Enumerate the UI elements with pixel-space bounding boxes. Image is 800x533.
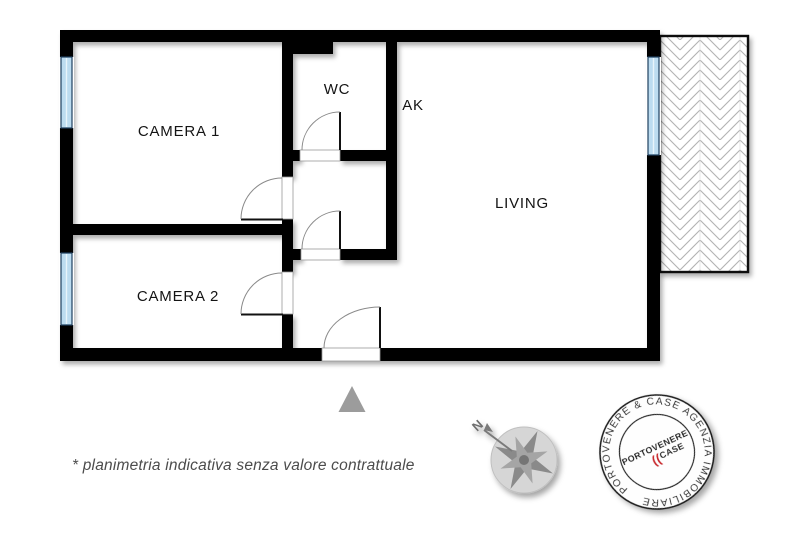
- agency-stamp: PORTOVENERE & CASE AGENZIA IMMOBILIARE P…: [589, 384, 724, 519]
- floorplan-page: CAMERA 1 WC AK LIVING CAMERA 2 * planime…: [0, 0, 800, 533]
- door-arc-camera1: [241, 178, 282, 219]
- door-arc-anteroom: [302, 211, 340, 249]
- balcony: [660, 36, 748, 272]
- door-sill-camera1: [282, 177, 293, 219]
- door-sill-wc: [300, 150, 340, 161]
- wall-anteroom-bottom-right: [340, 249, 397, 260]
- compass-north-label: N: [469, 417, 486, 434]
- entrance-marker-triangle: [339, 386, 366, 412]
- wall-wc-bottom-left: [282, 150, 300, 161]
- wall-top: [60, 30, 660, 42]
- wall-anteroom-bottom-left: [282, 249, 301, 260]
- compass-rose: N: [469, 417, 557, 493]
- label-wc: WC: [324, 81, 351, 98]
- walls: [60, 30, 660, 361]
- door-arc-entrance: [324, 307, 380, 348]
- door-arc-camera2: [241, 273, 282, 314]
- wall-between-bedrooms: [60, 224, 293, 235]
- door-arc-wc: [302, 112, 340, 150]
- windows: [59, 57, 661, 325]
- wall-shaft-above-wc: [285, 42, 333, 54]
- wall-living-divider: [386, 30, 397, 260]
- balcony-hatch-area: [660, 36, 748, 272]
- door-sill-entrance: [322, 348, 380, 361]
- disclaimer-text: * planimetria indicativa senza valore co…: [72, 457, 415, 474]
- compass-hub: [519, 455, 529, 465]
- door-sill-anteroom: [301, 249, 340, 260]
- wall-wc-bottom-right: [340, 150, 397, 161]
- floorplan-drawing: CAMERA 1 WC AK LIVING CAMERA 2 * planime…: [0, 0, 800, 533]
- label-camera1: CAMERA 1: [138, 123, 220, 140]
- door-sill-camera2: [282, 272, 293, 314]
- wall-corridor-lower: [282, 314, 293, 361]
- label-living: LIVING: [495, 195, 549, 212]
- label-camera2: CAMERA 2: [137, 288, 219, 305]
- label-ak: AK: [402, 97, 424, 114]
- room-labels: CAMERA 1 WC AK LIVING CAMERA 2: [137, 81, 549, 305]
